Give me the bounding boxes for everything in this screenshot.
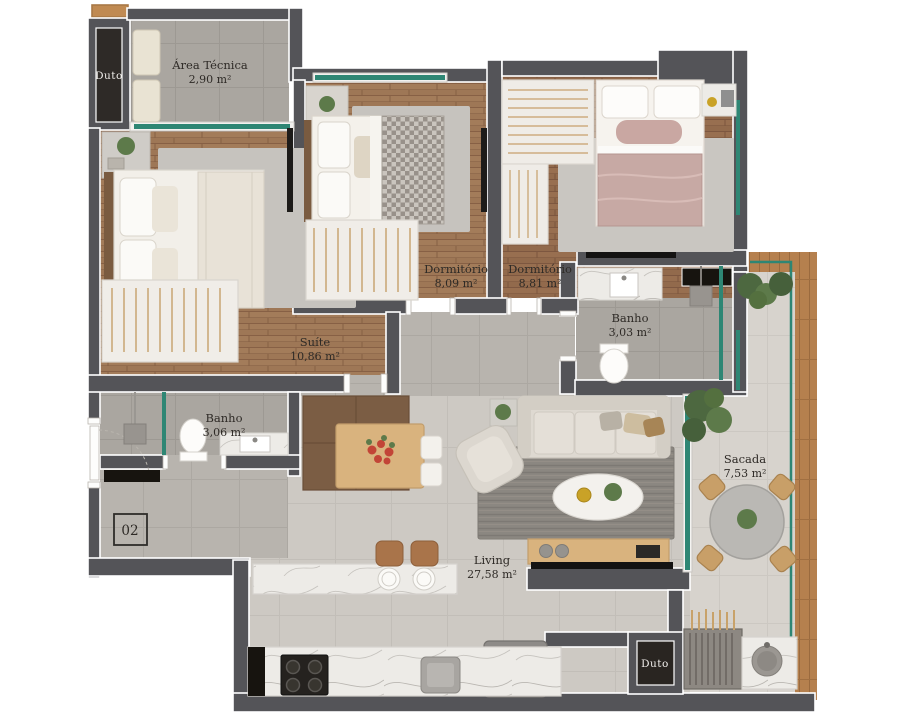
- label-living: Living: [474, 553, 511, 567]
- label-dormitorio1: Dormitório: [424, 262, 488, 276]
- window-dormitorio2: [736, 100, 740, 215]
- plant-icon: [604, 483, 622, 501]
- plant-icon: [495, 404, 511, 420]
- toilet-tank: [180, 452, 207, 461]
- living-tv: [531, 562, 673, 569]
- label-dormitorio2-m2: 8,81 m²: [519, 277, 562, 290]
- plant-icon: [117, 137, 135, 155]
- plate-icon: [378, 568, 400, 590]
- hall-console: [104, 470, 160, 482]
- shower-glass: [162, 392, 166, 455]
- basket: [108, 158, 124, 169]
- faucet-icon: [622, 276, 627, 281]
- wall-ledge: [92, 5, 128, 17]
- label-banho1-m2: 3,03 m²: [609, 326, 652, 339]
- shower-glass: [719, 266, 723, 380]
- dorm2-closet-left: [502, 164, 548, 244]
- sofa-back: [518, 396, 670, 410]
- toilet-icon: [600, 349, 628, 383]
- plant-icon: [737, 509, 757, 529]
- grill: [684, 629, 742, 689]
- bowl-icon: [577, 488, 591, 502]
- dorm1-bed-headboard: [304, 120, 312, 222]
- bolster-pillow: [616, 120, 682, 144]
- tv-wall: [527, 568, 690, 590]
- entry-door-leaf: [90, 426, 99, 480]
- wall-niche: [682, 268, 732, 286]
- coffee-table: [553, 474, 643, 520]
- label-sacada-m2: 7,53 m²: [724, 467, 767, 480]
- pillow-accent: [152, 186, 178, 232]
- label-suite-m2: 10,86 m²: [290, 350, 340, 363]
- faucet-icon: [764, 642, 770, 648]
- dorm2-tv: [586, 252, 676, 258]
- bar-stool: [411, 541, 438, 566]
- label-dormitorio1-m2: 8,09 m²: [435, 277, 478, 290]
- window-banho1: [736, 330, 740, 390]
- label-area-tecnica: Área Técnica: [171, 58, 248, 72]
- faucet-icon: [253, 438, 258, 443]
- decor-books: [721, 90, 734, 107]
- dorm1-plaid-duvet: [382, 116, 444, 224]
- pillow: [318, 122, 350, 168]
- media-tray: [636, 545, 660, 558]
- plant-icon: [319, 96, 335, 112]
- dorm1-tv: [481, 128, 487, 212]
- floor-plan-canvas: Área Técnica 2,90 m² Dormitório 8,09 m² …: [0, 0, 900, 720]
- sheet-fold: [370, 116, 382, 224]
- dorm2-closet-top: [502, 80, 594, 164]
- label-area-tecnica-m2: 2,90 m²: [189, 73, 232, 86]
- suite-wardrobe: [102, 280, 238, 362]
- dining-chair: [421, 463, 442, 486]
- label-living-m2: 27,58 m²: [467, 568, 517, 581]
- label-duct-bottom: Duto: [641, 658, 669, 670]
- dryer: [133, 80, 160, 122]
- label-banho2: Banho: [205, 411, 242, 425]
- pillow: [654, 86, 700, 118]
- suite-tv: [287, 128, 293, 212]
- washer: [133, 30, 160, 75]
- skewers: [692, 609, 734, 630]
- deck-edge-right: [795, 252, 817, 700]
- pillow: [602, 86, 648, 118]
- bar-stool: [376, 541, 403, 566]
- label-dormitorio2: Dormitório: [508, 262, 572, 276]
- label-sacada: Sacada: [724, 452, 766, 466]
- dorm2-duvet: [598, 154, 702, 226]
- label-suite: Suíte: [300, 335, 331, 349]
- unit-number: 02: [121, 523, 138, 539]
- floor-plan: Área Técnica 2,90 m² Dormitório 8,09 m² …: [0, 0, 900, 720]
- plate-icon: [413, 568, 435, 590]
- label-banho2-m2: 3,06 m²: [203, 426, 246, 439]
- lamp-icon: [707, 97, 717, 107]
- sheet-fold: [598, 146, 702, 154]
- throw-pillow: [599, 411, 623, 432]
- speaker-icon: [556, 545, 569, 558]
- dining-chair: [421, 436, 442, 459]
- sofa-cushion: [534, 412, 574, 454]
- label-banho1: Banho: [611, 311, 648, 325]
- kitchen-sink-basin: [427, 663, 454, 687]
- sofa-armrest: [518, 396, 531, 458]
- pillow: [318, 172, 350, 218]
- shower-head-icon: [690, 286, 712, 306]
- speaker-icon: [540, 545, 553, 558]
- pillow: [120, 178, 156, 236]
- shower-head-icon: [124, 424, 146, 444]
- label-duct-top: Duto: [95, 70, 123, 82]
- kitchen-tall-cabinet: [248, 647, 265, 696]
